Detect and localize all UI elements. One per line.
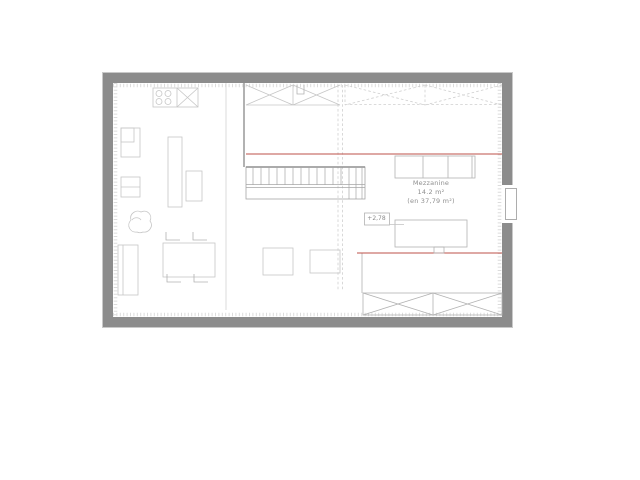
mezzanine-floor-area: (en 37,79 m²) [371,197,491,206]
furniture-blocks [263,248,340,275]
kitchen-counter [153,88,198,107]
staircase [246,167,365,199]
mezzanine-label: Mezzanine 14.2 m² (en 37,79 m²) [371,179,491,206]
mezzanine-bed [395,220,467,253]
mezzanine-name: Mezzanine [371,179,491,188]
kitchen-island [168,137,202,207]
sink-cross [177,88,198,107]
dining-set [163,232,215,282]
window-right [505,188,517,220]
void-guard-band [363,293,502,315]
skylight-band-solid [246,85,340,105]
dining-chairs [166,232,208,282]
canvas: Mezzanine 14.2 m² (en 37,79 m²) +2,78 [0,0,640,480]
hob-burners [156,91,171,105]
wall-units-left [121,128,140,197]
mezzanine-wardrobe [395,156,475,178]
skylight-band-dashed [345,85,502,105]
floor-plan: Mezzanine 14.2 m² (en 37,79 m²) +2,78 [103,73,512,327]
sofa-left [118,245,138,295]
mezzanine-area: 14.2 m² [371,188,491,197]
plant-icon [129,211,152,233]
elevation-marker: +2,78 [364,213,389,225]
